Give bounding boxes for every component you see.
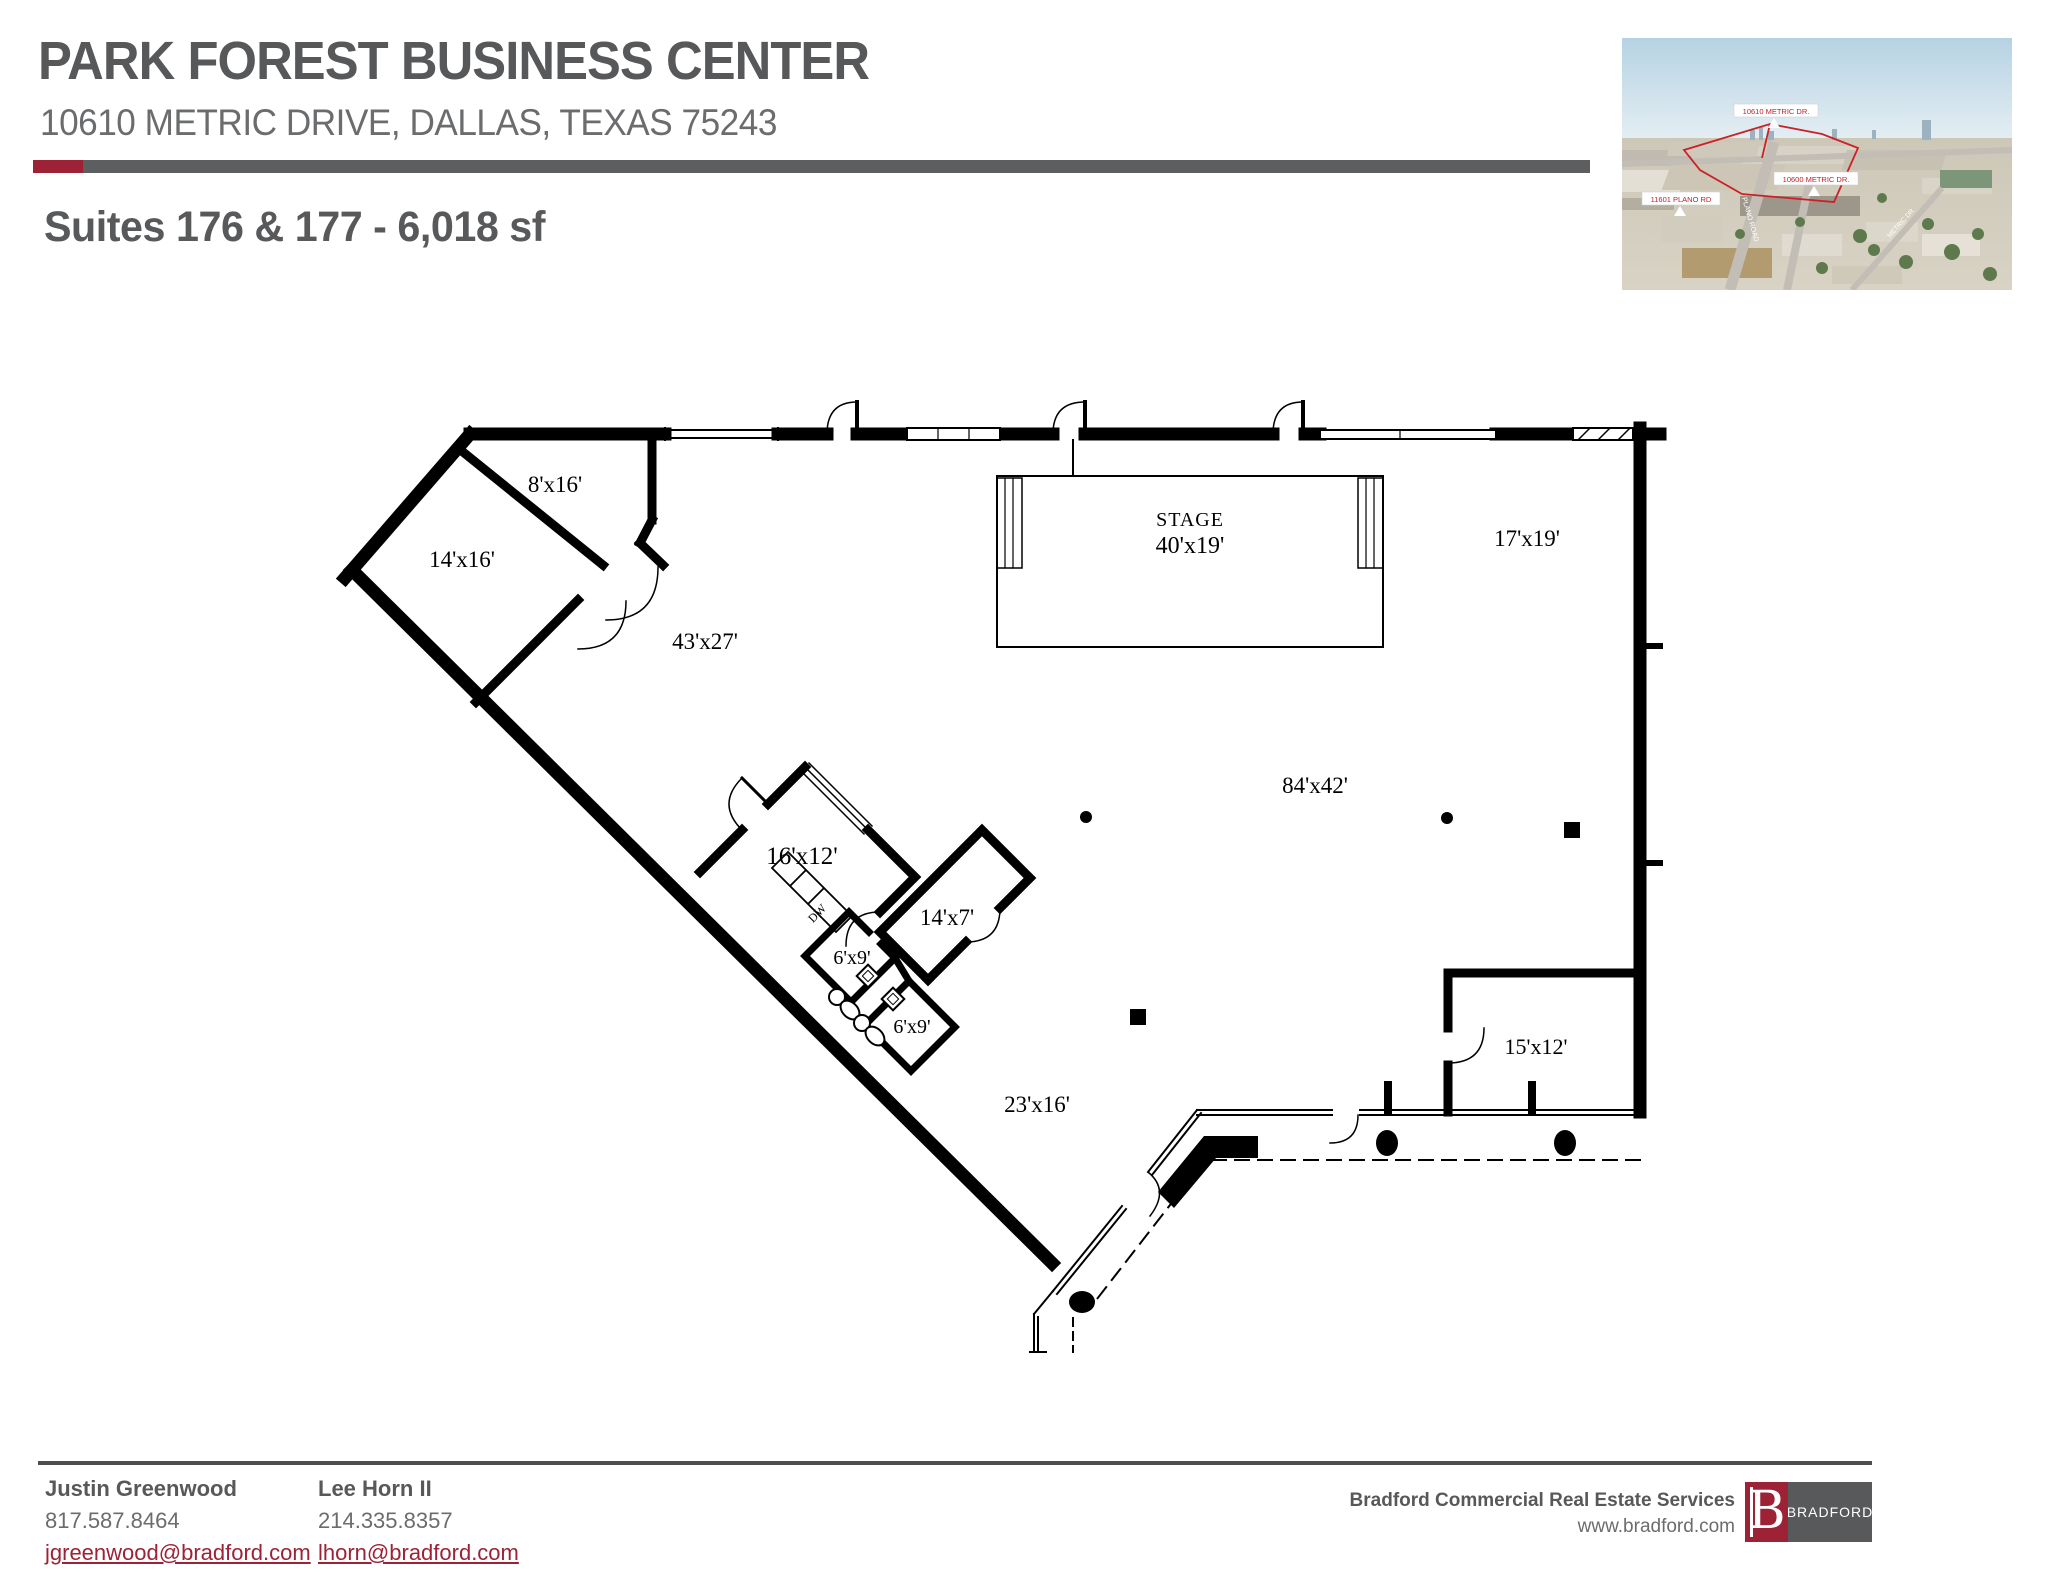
logo-b-mark: B xyxy=(1745,1482,1788,1542)
storefront-stub-walls xyxy=(1388,1085,1532,1112)
room-label-17x19: 17'x19' xyxy=(1494,526,1560,551)
floor-plan: 8'x16' 14'x16' 43'x27' STAGE 40'x19' 17'… xyxy=(0,0,2048,1583)
room-15x12-door-arc xyxy=(1448,1028,1484,1063)
contact-phone: 817.587.8464 xyxy=(45,1508,295,1534)
area-label-84x42: 84'x42' xyxy=(1282,773,1348,798)
contact-email-link[interactable]: jgreenwood@bradford.com xyxy=(45,1540,311,1565)
flyer-page: PARK FOREST BUSINESS CENTER 10610 METRIC… xyxy=(0,0,2048,1583)
contact-phone: 214.335.8357 xyxy=(318,1508,568,1534)
room-label-8x16: 8'x16' xyxy=(528,472,582,497)
room-label-15x12: 15'x12' xyxy=(1505,1034,1568,1059)
bradford-logo: B BRADFORD xyxy=(1745,1482,1872,1542)
contact-email-link[interactable]: lhorn@bradford.com xyxy=(318,1540,519,1565)
contact-name: Lee Horn II xyxy=(318,1476,568,1502)
logo-wordmark: BRADFORD xyxy=(1788,1482,1872,1542)
lease-dashed-lines xyxy=(1073,1160,1640,1352)
entry-wedge-wall xyxy=(1158,1136,1258,1208)
outer-right-wall xyxy=(1640,428,1660,1112)
window-strip-3 xyxy=(1320,430,1496,439)
window-hatched xyxy=(1573,428,1633,440)
window-strip-1 xyxy=(665,428,778,440)
stage-label: STAGE xyxy=(1156,509,1224,531)
room-label-14x7: 14'x7' xyxy=(920,905,974,930)
room-cluster-glass-wall xyxy=(801,763,872,834)
window-strip-2 xyxy=(907,428,1000,440)
room-label-14x16: 14'x16' xyxy=(429,547,495,572)
room-label-16x12: 16'x12' xyxy=(766,843,838,870)
footer-company: Bradford Commercial Real Estate Services xyxy=(1350,1490,1735,1512)
room-label-23x16: 23'x16' xyxy=(1004,1092,1070,1117)
footer-brand: Bradford Commercial Real Estate Services… xyxy=(1350,1490,1735,1538)
stage-size-label: 40'x19' xyxy=(1156,533,1225,559)
storefront-walls xyxy=(1030,1110,1640,1352)
contact-card-1: Justin Greenwood 817.587.8464 jgreenwood… xyxy=(45,1476,295,1566)
footer-website: www.bradford.com xyxy=(1350,1516,1735,1538)
interior-door-arcs xyxy=(578,567,658,649)
footer-rule xyxy=(38,1461,1872,1465)
room-label-43x27: 43'x27' xyxy=(672,629,738,654)
room-label-6x9-b: 6'x9' xyxy=(893,1016,930,1038)
room-label-6x9-a: 6'x9' xyxy=(833,947,870,969)
contact-name: Justin Greenwood xyxy=(45,1476,295,1502)
contact-card-2: Lee Horn II 214.335.8357 lhorn@bradford.… xyxy=(318,1476,568,1566)
